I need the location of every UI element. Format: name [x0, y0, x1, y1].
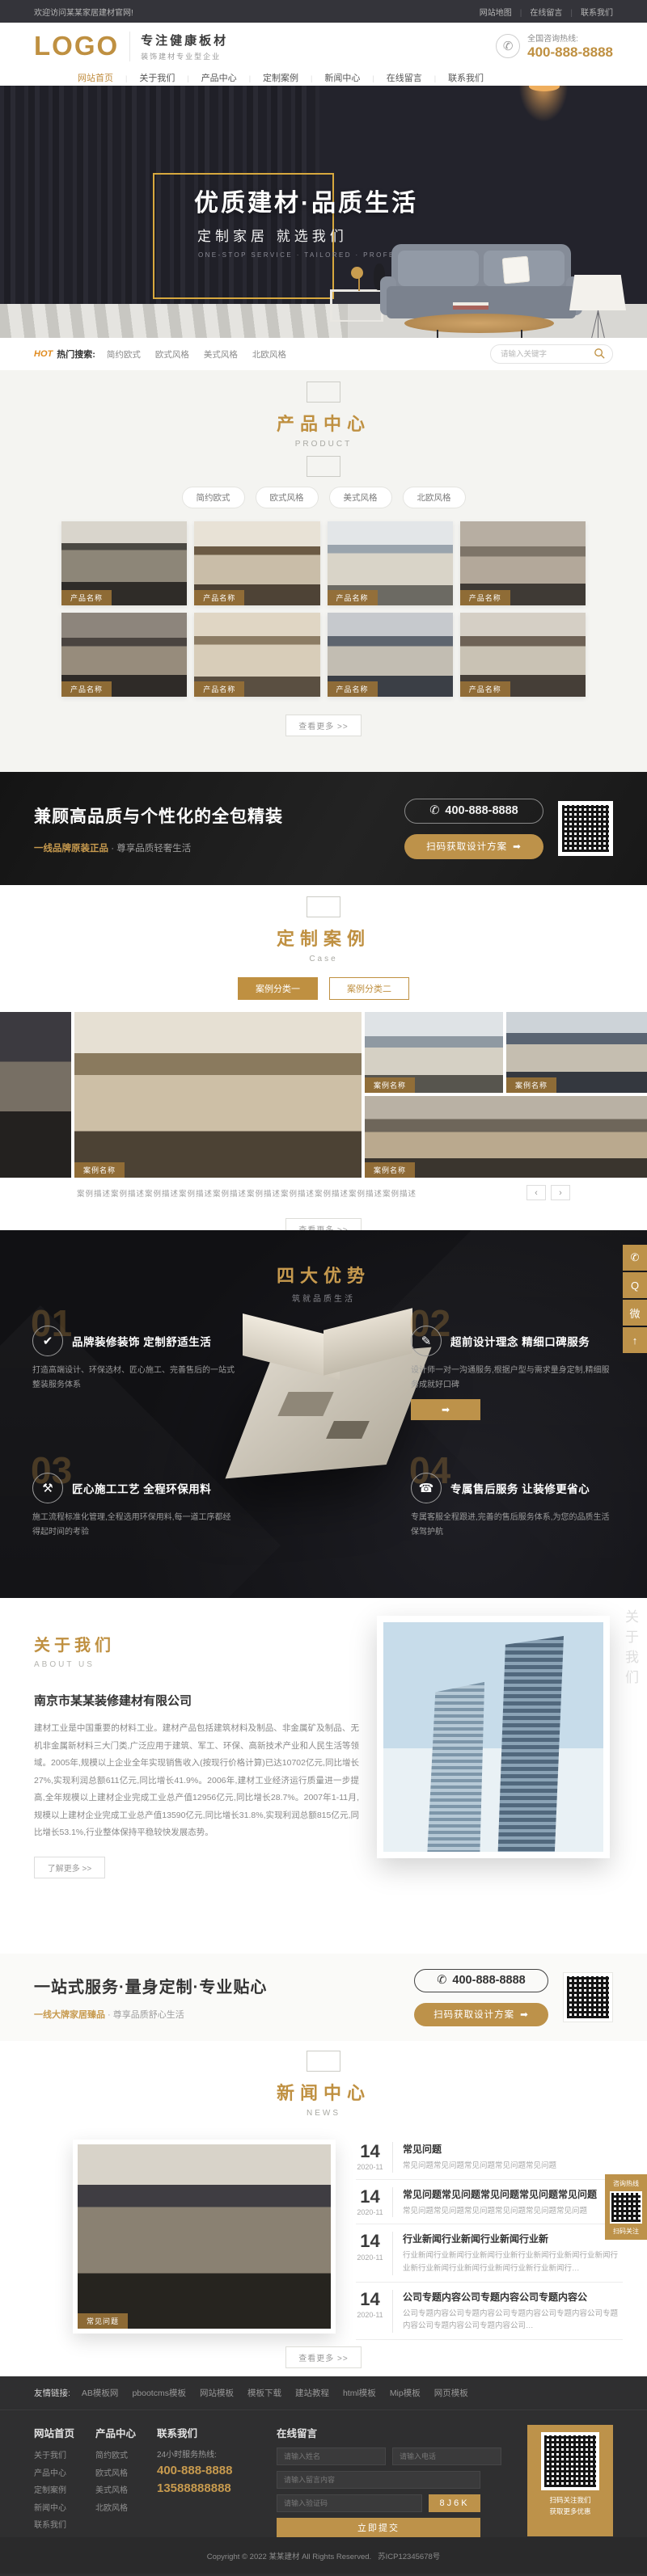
news-date: 2020-11 [356, 2311, 384, 2319]
news-item[interactable]: 142020-11 行业新闻行业新闻行业新闻行业新行业新闻行业新闻行业新闻行业新… [356, 2224, 623, 2282]
banner-wall-lamp-glow [510, 86, 577, 160]
news-item[interactable]: 142020-11 公司专题内容公司专题内容公司专题内容公公司专题内容公司专题内… [356, 2283, 623, 2340]
room-3d-graphic [241, 1318, 417, 1502]
footer-col-title: 网站首页 [34, 2425, 95, 2440]
header: LOGO 专注健康板材 装饰建材专业型企业 ✆ 全国咨询热线: 400-888-… [0, 23, 647, 70]
next-arrow-icon[interactable]: › [551, 1185, 570, 1200]
hammer-craft-icon: ⚒ [32, 1473, 63, 1503]
news-featured-label: 常见问题 [78, 2313, 128, 2329]
section-about: 关于我们 ABOUT US 南京市某某装修建材有限公司 建材工业是中国重要的材料… [0, 1598, 647, 1954]
cta2-subtitle: 一线大牌家居臻品 · 尊享品质舒心生活 [34, 2008, 267, 2021]
hot-tag: HOT [34, 349, 53, 359]
news-item-title: 常见问题常见问题常见问题常见问题常见问题 [403, 2187, 597, 2201]
form-captcha-input[interactable] [277, 2494, 422, 2512]
footer-products-column: 产品中心 简约欧式 欧式风格 美式风格 北欧风格 [95, 2425, 157, 2537]
footer-qr-caption-2: 获取更多优惠 [549, 2507, 590, 2515]
floor-lamp-leg [598, 310, 598, 338]
slogan: 专注健康板材 装饰建材专业型企业 [129, 32, 228, 61]
cta-qr-code [558, 801, 613, 856]
form-message-input[interactable] [277, 2471, 480, 2489]
product-card[interactable]: 产品名称 [194, 521, 319, 605]
building-photo [383, 1622, 603, 1852]
about-paragraph: 建材工业是中国重要的材料工业。建材产品包括建筑材料及制品、非金属矿及制品、无机非… [34, 1720, 359, 1842]
topbar: 欢迎访问某某家居建材官网! 网站地图 在线留言 联系我们 [0, 0, 647, 23]
news-item-desc: 常见问题常见问题常见问题常见问题常见问题常见问题 [403, 2205, 597, 2218]
footer-main: 网站首页 关于我们 产品中心 定制案例 新闻中心 联系我们 产品中心 简约欧式 … [0, 2410, 647, 2537]
nav-item-home[interactable]: 网站首页 [78, 71, 113, 84]
cta2-subtitle-rest: · 尊享品质舒心生活 [105, 2010, 184, 2020]
news-item-desc: 常见问题常见问题常见问题常见问题常见问题 [403, 2160, 556, 2173]
case-slide[interactable]: 案例名称 [74, 1012, 362, 1178]
nav-item-news[interactable]: 新闻中心 [298, 71, 360, 84]
footer-contact-column: 联系我们 24小时服务热线: 400-888-8888 13588888888 [157, 2425, 277, 2537]
filter-pill[interactable]: 简约欧式 [182, 487, 245, 508]
friend-link[interactable]: AB模板网 [82, 2387, 119, 2399]
product-name-chip: 产品名称 [328, 681, 378, 697]
cases-more-button[interactable]: 查看更多 >> [285, 1218, 362, 1230]
case-slide[interactable]: 案例名称 [506, 1012, 647, 1093]
advantage-title: 超前设计理念 精细口碑服务 [450, 1333, 590, 1349]
news-day: 14 [356, 2187, 384, 2207]
nav-item-products[interactable]: 产品中心 [175, 71, 236, 84]
nav-item-message[interactable]: 在线留言 [360, 71, 421, 84]
cta2-design-button[interactable]: 扫码获取设计方案➡ [414, 2003, 548, 2026]
advantage-item-2: 02 ✎ 超前设计理念 精细口碑服务 设计师一对一沟通服务,根据户型与需求量身定… [411, 1326, 616, 1420]
about-side-watermark: 关于我们 [620, 1609, 641, 1690]
cta-subtitle-em: 一线品牌原装正品 [34, 844, 108, 854]
hot-search-bar: HOT 热门搜索: 简约欧式 欧式风格 美式风格 北欧风格 [0, 338, 647, 370]
product-name-chip: 产品名称 [328, 590, 378, 605]
case-name-chip: 案例名称 [365, 1162, 415, 1178]
product-card[interactable]: 产品名称 [61, 521, 187, 605]
product-card[interactable]: 产品名称 [194, 613, 319, 697]
footer-col-title: 联系我们 [157, 2425, 277, 2440]
cta-phone-pill[interactable]: ✆400-888-8888 [404, 799, 543, 824]
friend-links-label: 友情链接: [34, 2387, 70, 2399]
advantage-item-3: 03 ⚒ 匠心施工工艺 全程环保用料 施工流程标准化管理,全程选用环保用料,每一… [32, 1473, 238, 1539]
hot-keywords: 简约欧式 欧式风格 美式风格 北欧风格 [107, 348, 286, 360]
advantage-more-button[interactable]: ➡ [411, 1399, 480, 1420]
heading-decoration [307, 896, 340, 917]
hot-keyword[interactable]: 北欧风格 [252, 348, 286, 360]
advantage-title: 匠心施工工艺 全程环保用料 [72, 1480, 211, 1496]
banner-books-graphic [453, 306, 488, 310]
footer-hotline-label: 24小时服务热线: [157, 2447, 277, 2460]
cta-banner-dark: 兼顾高品质与个性化的全包精装 一线品牌原装正品 · 尊享品质轻奢生活 ✆400-… [0, 772, 647, 885]
product-name-chip: 产品名称 [460, 681, 510, 697]
news-subtitle: NEWS [307, 2109, 340, 2118]
hot-keyword[interactable]: 美式风格 [204, 348, 238, 360]
floating-qr-widget[interactable]: 咨询热线 扫码关注 [605, 2174, 647, 2240]
footer-phone-2: 13588888888 [157, 2481, 277, 2495]
news-day: 14 [356, 2232, 384, 2251]
friend-link[interactable]: 网页模板 [434, 2387, 468, 2399]
product-filters: 简约欧式 欧式风格 美式风格 北欧风格 [0, 487, 647, 508]
section-news: 新闻中心 NEWS 常见问题 142020-11 常见问题常见问题常见问题常见问… [0, 2041, 647, 2376]
product-card[interactable]: 产品名称 [328, 613, 453, 697]
advantages-title: 四大优势 [277, 1262, 370, 1288]
footer-product-link[interactable]: 欧式风格 [95, 2465, 157, 2483]
product-name-chip: 产品名称 [194, 681, 244, 697]
nav-item-contact[interactable]: 联系我们 [422, 71, 484, 84]
cta-design-button[interactable]: 扫码获取设计方案➡ [404, 834, 543, 859]
case-name-chip: 案例名称 [74, 1162, 125, 1178]
news-title: 新闻中心 [277, 2079, 370, 2105]
main-nav: 网站首页 关于我们 产品中心 定制案例 新闻中心 在线留言 联系我们 [0, 70, 647, 86]
captcha-image[interactable]: 8J6K [429, 2494, 480, 2512]
news-item[interactable]: 142020-11 常见问题常见问题常见问题常见问题常见问题常见问题 [356, 2135, 623, 2180]
advantage-desc: 专属客服全程跟进,完善的售后服务体系,为您的品质生活保驾护航 [411, 1511, 616, 1539]
cta2-phone-number: 400-888-8888 [452, 1974, 525, 1987]
wechat-icon[interactable]: 微 [623, 1300, 647, 1326]
advantage-item-1: 01 ✔ 品牌装修装饰 定制舒适生活 打造高端设计、环保选材、匠心施工、完善售后… [32, 1326, 238, 1392]
footer-nav-link[interactable]: 新闻中心 [34, 2500, 95, 2518]
welcome-text: 欢迎访问某某家居建材官网! [34, 6, 133, 18]
arrow-right-icon: ➡ [442, 1404, 450, 1415]
news-item-title: 行业新闻行业新闻行业新闻行业新 [403, 2232, 623, 2245]
case-name-chip: 案例名称 [506, 1077, 556, 1093]
product-card[interactable]: 产品名称 [460, 521, 586, 605]
copyright-bar: Copyright © 2022 某某建材 All Rights Reserve… [0, 2537, 647, 2574]
footer-product-link[interactable]: 简约欧式 [95, 2447, 157, 2465]
news-heading: 新闻中心 NEWS [0, 2051, 647, 2125]
cases-title: 定制案例 [277, 925, 370, 951]
copyright-text: Copyright © 2022 某某建材 All Rights Reserve… [207, 2550, 371, 2561]
advantages-subtitle: 筑就品质生活 [292, 1292, 355, 1304]
arrow-right-icon: ➡ [513, 841, 522, 852]
cta2-button-label: 扫码获取设计方案 [433, 2008, 514, 2021]
filter-pill[interactable]: 美式风格 [329, 487, 392, 508]
footer-qr-panel: 扫码关注我们获取更多优惠 [527, 2425, 613, 2536]
case-tabs: 案例分类一 案例分类二 [0, 977, 647, 1000]
footer-product-link[interactable]: 美式风格 [95, 2482, 157, 2500]
nav-item-about[interactable]: 关于我们 [113, 71, 175, 84]
case-tab-1[interactable]: 案例分类一 [238, 977, 318, 1000]
advantage-item-4: 04 ☎ 专属售后服务 让装修更省心 专属客服全程跟进,完善的售后服务体系,为您… [411, 1473, 616, 1539]
footer-product-link[interactable]: 北欧风格 [95, 2500, 157, 2518]
hotline-label: 全国咨询热线: [527, 32, 613, 44]
banner-desk-lamp [351, 267, 363, 279]
about-more-button[interactable]: 了解更多 >> [34, 1857, 105, 1878]
form-name-input[interactable] [277, 2447, 386, 2465]
section-advantages: 四大优势 筑就品质生活 01 ✔ 品牌装修装饰 定制舒适生活 打造高端设计、环保… [0, 1230, 647, 1598]
form-submit-button[interactable]: 立即提交 [277, 2518, 480, 2537]
banner-pillow-graphic [502, 256, 531, 285]
footer-nav-link[interactable]: 产品中心 [34, 2465, 95, 2483]
case-slide[interactable]: 案例名称 [365, 1096, 647, 1178]
hero-banner[interactable]: 优质建材·品质生活 定制家居 就选我们 ONE-STOP SERVICE · T… [0, 86, 647, 338]
banner-sofa-graphic [391, 244, 571, 291]
pencil-design-icon: ✎ [411, 1326, 442, 1356]
footer-form-title: 在线留言 [277, 2425, 480, 2440]
product-name-chip: 产品名称 [61, 590, 112, 605]
cta-title: 兼顾高品质与个性化的全包精装 [34, 803, 283, 828]
footer-qr-caption-1: 扫码关注我们 [549, 2496, 590, 2504]
products-more-button[interactable]: 查看更多 >> [285, 715, 362, 736]
banner-floor-stripes-graphic [0, 304, 348, 338]
news-date: 2020-11 [356, 2163, 384, 2171]
hotline-number: 400-888-8888 [527, 44, 613, 61]
back-to-top-icon[interactable]: ↑ [623, 1327, 647, 1353]
cta-phone-number: 400-888-8888 [445, 804, 518, 817]
shield-check-icon: ✔ [32, 1326, 63, 1356]
news-item-desc: 行业新闻行业新闻行业新闻行业新行业新闻行业新闻行业新闻行业新行业新闻行业新闻行业… [403, 2249, 623, 2275]
footer-nav-column: 网站首页 关于我们 产品中心 定制案例 新闻中心 联系我们 [34, 2425, 95, 2537]
coffee-table-leg [437, 330, 438, 338]
advantage-title: 专属售后服务 让装修更省心 [450, 1480, 590, 1496]
news-more-button[interactable]: 查看更多 >> [285, 2346, 362, 2368]
case-slide-partial[interactable] [0, 1012, 71, 1178]
section-products: 产品中心 PRODUCT 简约欧式 欧式风格 美式风格 北欧风格 产品名称 产品… [0, 370, 647, 772]
cases-subtitle: Case [309, 955, 337, 963]
news-item-desc: 公司专题内容公司专题内容公司专题内容公司专题内容公司专题内容公司专题内容公司专题… [403, 2308, 623, 2333]
case-slider: 案例名称 案例名称 案例名称 案例名称 [0, 1012, 647, 1178]
product-name-chip: 产品名称 [61, 681, 112, 697]
heading-decoration [307, 2051, 340, 2072]
advantage-desc: 打造高端设计、环保选材、匠心施工、完善售后的一站式整装服务体系 [32, 1364, 238, 1392]
news-featured-image[interactable]: 常见问题 [73, 2140, 336, 2334]
building-tower [489, 1636, 564, 1852]
products-title: 产品中心 [277, 410, 370, 436]
news-item-title: 常见问题 [403, 2142, 556, 2156]
news-list: 142020-11 常见问题常见问题常见问题常见问题常见问题常见问题 14202… [356, 2135, 623, 2340]
friend-link[interactable]: Mip模板 [390, 2387, 421, 2399]
advantage-title: 品牌装修装饰 定制舒适生活 [72, 1333, 211, 1349]
cta2-qr-code [563, 1972, 613, 2022]
product-card[interactable]: 产品名称 [61, 613, 187, 697]
cases-heading: 定制案例 Case [0, 896, 647, 971]
qr-pattern [562, 805, 609, 852]
floating-toolbar: ✆ Q 微 ↑ [623, 1245, 647, 1355]
products-heading: 产品中心 PRODUCT [0, 382, 647, 477]
friend-link[interactable]: 模板下载 [247, 2387, 281, 2399]
phone-icon: ✆ [437, 1974, 446, 1987]
news-item-title: 公司专题内容公司专题内容公司专题内容公 [403, 2290, 623, 2304]
case-tab-2[interactable]: 案例分类二 [329, 977, 409, 1000]
footer-phone-1: 400-888-8888 [157, 2464, 277, 2477]
building-tower [427, 1682, 484, 1852]
hot-search-label: 热门搜索: [57, 348, 95, 360]
footer-nav-link[interactable]: 定制案例 [34, 2482, 95, 2500]
cta-button-label: 扫码获取设计方案 [426, 840, 507, 853]
advantage-desc: 设计师一对一沟通服务,根据户型与需求量身定制,精细服务成就好口碑 [411, 1364, 616, 1392]
filter-pill[interactable]: 欧式风格 [256, 487, 319, 508]
qq-icon[interactable]: Q [623, 1272, 647, 1298]
search-box [490, 344, 613, 364]
search-icon[interactable] [593, 348, 606, 360]
banner-side-table-graphic [330, 289, 383, 322]
sofa-cushion [398, 251, 479, 286]
arrow-right-icon: ➡ [520, 2009, 529, 2020]
coffee-table-leg [521, 330, 522, 338]
phone-service-icon: ☎ [411, 1473, 442, 1503]
cta-subtitle-rest: · 尊享品质轻奢生活 [108, 844, 191, 854]
heading-decoration [307, 382, 340, 403]
cta-banner-light: 一站式服务·量身定制·专业贴心 一线大牌家居臻品 · 尊享品质舒心生活 ✆400… [0, 1954, 647, 2041]
section-cases: 定制案例 Case 案例分类一 案例分类二 案例名称 案例名称 案例名称 案例名… [0, 885, 647, 1230]
cta2-subtitle-em: 一线大牌家居臻品 [34, 2010, 105, 2020]
hot-keyword[interactable]: 欧式风格 [155, 348, 189, 360]
footer: 友情链接: AB模板网 pbootcms模板 网站模板 模板下载 建站教程 ht… [0, 2376, 647, 2576]
product-name-chip: 产品名称 [194, 590, 244, 605]
nav-item-cases[interactable]: 定制案例 [237, 71, 298, 84]
product-card[interactable]: 产品名称 [328, 521, 453, 605]
friend-link[interactable]: html模板 [343, 2387, 376, 2399]
topbar-link-contact[interactable]: 联系我们 [562, 6, 613, 18]
about-photo [377, 1616, 610, 1858]
case-caption-bar: 案例描述案例描述案例描述案例描述案例描述案例描述案例描述案例描述案例描述案例描述… [77, 1185, 570, 1200]
case-caption-text: 案例描述案例描述案例描述案例描述案例描述案例描述案例描述案例描述案例描述案例描述 [77, 1187, 417, 1199]
form-tel-input[interactable] [392, 2447, 501, 2465]
banner-coffee-table-graphic [404, 314, 554, 333]
qr-pattern [610, 2191, 642, 2224]
footer-nav-link[interactable]: 联系我们 [34, 2517, 95, 2535]
product-card[interactable]: 产品名称 [460, 613, 586, 697]
logo[interactable]: LOGO [34, 31, 119, 61]
qr-pattern [567, 1976, 609, 2018]
qr-pattern [541, 2432, 599, 2490]
filter-pill[interactable]: 北欧风格 [403, 487, 466, 508]
phone-icon: ✆ [429, 804, 439, 817]
footer-message-form: 在线留言 8J6K 立即提交 [277, 2425, 480, 2537]
topbar-link-sitemap[interactable]: 网站地图 [480, 6, 512, 18]
heading-decoration [307, 456, 340, 477]
footer-col-title: 产品中心 [95, 2425, 157, 2440]
friend-link[interactable]: 网站模板 [200, 2387, 234, 2399]
case-slider-arrows: ‹ › [526, 1185, 570, 1200]
footer-nav-link[interactable]: 关于我们 [34, 2447, 95, 2465]
case-slide[interactable]: 案例名称 [365, 1012, 503, 1093]
news-date: 2020-11 [356, 2253, 384, 2262]
slogan-sub: 装饰建材专业型企业 [141, 51, 228, 61]
banner-title: 优质建材·品质生活 [194, 183, 418, 218]
product-name-chip: 产品名称 [460, 590, 510, 605]
cta-subtitle: 一线品牌原装正品 · 尊享品质轻奢生活 [34, 841, 283, 854]
float-qr-line1: 咨询热线 [609, 2179, 643, 2188]
topbar-link-message[interactable]: 在线留言 [512, 6, 563, 18]
banner-floor-lamp [569, 275, 626, 310]
slogan-main: 专注健康板材 [141, 32, 228, 48]
icp-link[interactable]: 苏ICP12345678号 [378, 2550, 440, 2561]
hotline: ✆ 全国咨询热线: 400-888-8888 [496, 32, 613, 61]
advantage-desc: 施工流程标准化管理,全程选用环保用料,每一道工序都经得起时间的考验 [32, 1511, 238, 1539]
phone-icon[interactable]: ✆ [623, 1245, 647, 1271]
news-date: 2020-11 [356, 2208, 384, 2216]
news-day: 14 [356, 2142, 384, 2161]
banner-subtitle: 定制家居 就选我们 [197, 225, 348, 245]
case-name-chip: 案例名称 [365, 1077, 415, 1093]
product-grid: 产品名称 产品名称 产品名称 产品名称 产品名称 产品名称 产品名称 产品名称 [61, 521, 586, 697]
topbar-links: 网站地图 在线留言 联系我们 [480, 6, 613, 18]
cta2-phone-pill[interactable]: ✆400-888-8888 [414, 1969, 548, 1992]
cta2-title: 一站式服务·量身定制·专业贴心 [34, 1974, 267, 1997]
friend-link[interactable]: 建站教程 [295, 2387, 329, 2399]
news-day: 14 [356, 2290, 384, 2309]
friend-link[interactable]: pbootcms模板 [132, 2387, 186, 2399]
news-item[interactable]: 142020-11 常见问题常见问题常见问题常见问题常见问题常见问题常见问题常见… [356, 2180, 623, 2225]
prev-arrow-icon[interactable]: ‹ [526, 1185, 546, 1200]
hot-keyword[interactable]: 简约欧式 [107, 348, 141, 360]
phone-icon: ✆ [496, 34, 520, 58]
products-subtitle: PRODUCT [295, 440, 352, 449]
friend-links: 友情链接: AB模板网 pbootcms模板 网站模板 模板下载 建站教程 ht… [0, 2376, 647, 2410]
float-qr-line2: 扫码关注 [609, 2227, 643, 2236]
